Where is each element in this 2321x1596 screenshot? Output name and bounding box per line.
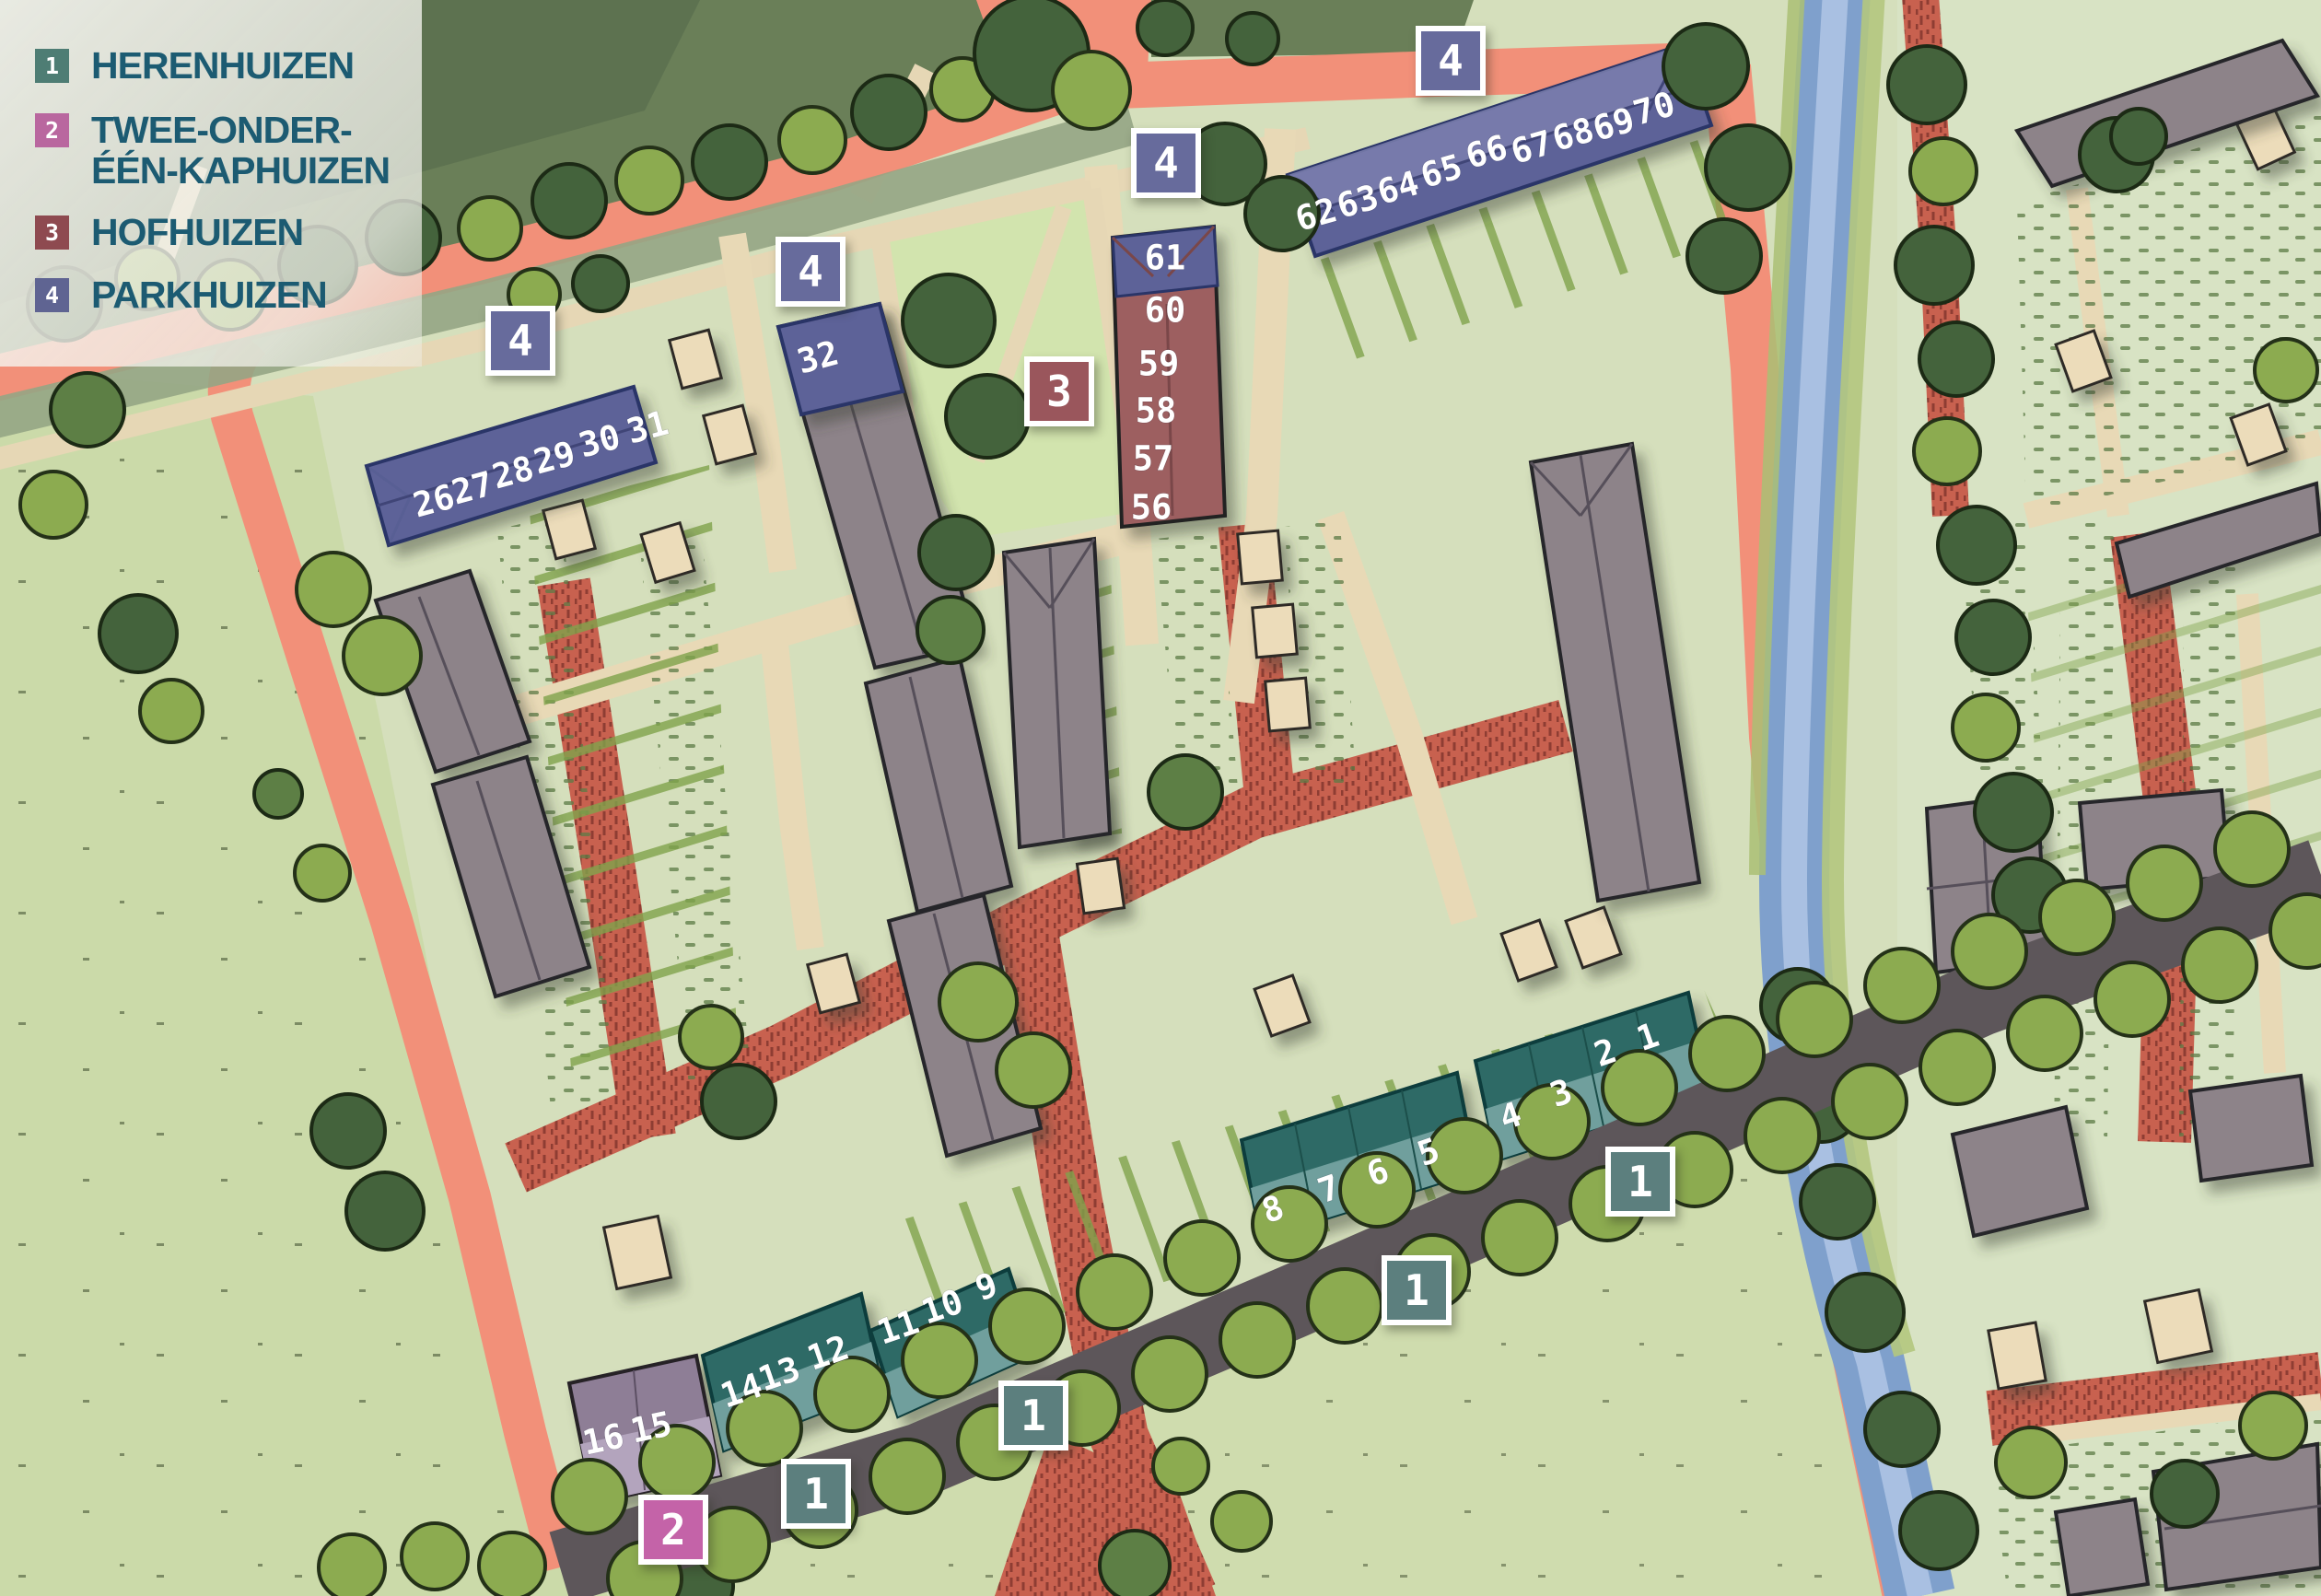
- tree-icon: [1483, 1201, 1557, 1275]
- tree-icon: [2240, 1392, 2306, 1459]
- tree-icon: [1137, 0, 1193, 55]
- tree-icon: [140, 680, 203, 742]
- tree-icon: [346, 1172, 424, 1250]
- tree-icon: [616, 147, 682, 214]
- tree-icon: [852, 76, 926, 149]
- tree-icon: [297, 553, 370, 626]
- tree-icon: [532, 164, 606, 238]
- legend-swatch-hofhuizen: 3: [35, 216, 69, 250]
- tree-icon: [2183, 928, 2257, 1002]
- tree-icon: [2008, 996, 2082, 1070]
- tree-icon: [573, 256, 628, 311]
- building-gray-right-low-2: [2190, 1076, 2312, 1181]
- plot-number: 61: [1145, 239, 1186, 278]
- tree-icon: [680, 1006, 742, 1068]
- tree-icon: [1956, 600, 2030, 674]
- legend-swatch-kaphuizen: 2: [35, 113, 69, 147]
- badge-parkhuizen: 4: [485, 306, 555, 376]
- tree-icon: [1100, 1531, 1170, 1596]
- legend-label: TWEE-ONDER-ÉÉN-KAPHUIZEN: [91, 110, 395, 191]
- badge-kaphuizen: 2: [638, 1495, 708, 1565]
- tree-icon: [1833, 1065, 1907, 1138]
- tree-icon: [1663, 24, 1748, 109]
- badge-hofhuizen: 3: [1024, 356, 1094, 426]
- plot-number: 60: [1145, 291, 1186, 331]
- plot-number: 59: [1138, 344, 1180, 384]
- tree-icon: [1938, 507, 2015, 584]
- tree-icon: [919, 516, 993, 589]
- tree-icon: [99, 595, 177, 672]
- legend-label: HERENHUIZEN: [91, 45, 395, 86]
- badge-parkhuizen: 4: [1131, 128, 1201, 198]
- tree-icon: [1919, 322, 1993, 396]
- tree-icon: [1212, 1492, 1271, 1551]
- tree-icon: [1801, 1165, 1874, 1239]
- tree-icon: [311, 1094, 385, 1168]
- tree-icon: [2215, 812, 2289, 886]
- tree-icon: [1745, 1099, 1819, 1172]
- building-gray-bottom-right-2: [2056, 1499, 2148, 1596]
- legend-swatch-parkhuizen: 4: [35, 278, 69, 312]
- tree-icon: [1308, 1269, 1382, 1343]
- tree-icon: [1914, 418, 1980, 484]
- tree-icon: [1133, 1337, 1207, 1411]
- badge-herenhuizen: 1: [1605, 1147, 1675, 1217]
- tree-icon: [2128, 846, 2201, 920]
- tree-icon: [553, 1460, 626, 1533]
- badge-herenhuizen: 1: [781, 1459, 851, 1529]
- tree-icon: [1149, 755, 1222, 829]
- tree-icon: [1690, 1017, 1764, 1090]
- tree-icon: [2152, 1461, 2218, 1527]
- plot-number: 16: [579, 1415, 628, 1462]
- tree-icon: [1687, 219, 1761, 293]
- tree-icon: [1895, 227, 1973, 304]
- tree-icon: [1910, 138, 1977, 204]
- tree-icon: [1706, 125, 1790, 210]
- legend-item-herenhuizen: 1 HERENHUIZEN: [35, 49, 395, 86]
- tree-icon: [20, 472, 87, 538]
- tree-icon: [2095, 962, 2169, 1036]
- tree-icon: [1220, 1303, 1294, 1377]
- tree-icon: [459, 197, 521, 260]
- tree-icon: [946, 375, 1029, 458]
- tree-icon: [779, 107, 846, 173]
- tree-icon: [319, 1534, 385, 1596]
- tree-icon: [1778, 983, 1851, 1056]
- legend-swatch-herenhuizen: 1: [35, 49, 69, 83]
- badge-parkhuizen: 4: [1416, 26, 1486, 96]
- tree-icon: [1953, 914, 2026, 988]
- tree-icon: [402, 1523, 468, 1590]
- site-plan-map: 26 27 28 29 30 31 32 62 63 64 65 66 67 6…: [0, 0, 2321, 1596]
- tree-icon: [2111, 109, 2166, 164]
- tree-icon: [1900, 1492, 1977, 1569]
- legend-item-hofhuizen: 3 HOFHUIZEN: [35, 216, 395, 252]
- badge-parkhuizen: 4: [776, 237, 846, 307]
- tree-icon: [1865, 949, 1939, 1022]
- tree-icon: [1078, 1255, 1151, 1329]
- tree-icon: [1888, 46, 1965, 123]
- legend-item-parkhuizen: 4 PARKHUIZEN: [35, 278, 395, 315]
- tree-icon: [1953, 694, 2019, 761]
- tree-icon: [870, 1439, 944, 1513]
- legend-label: HOFHUIZEN: [91, 212, 395, 252]
- plot-number: 57: [1133, 439, 1174, 479]
- legend-label: PARKHUIZEN: [91, 274, 395, 315]
- tree-icon: [1165, 1221, 1239, 1295]
- plot-number: 56: [1131, 488, 1172, 528]
- tree-icon: [295, 845, 350, 901]
- tree-icon: [903, 274, 995, 367]
- tree-icon: [1053, 52, 1130, 129]
- tree-icon: [702, 1065, 776, 1138]
- tree-icon: [1153, 1439, 1208, 1494]
- tree-icon: [939, 963, 1017, 1041]
- tree-icon: [1975, 774, 2052, 851]
- badge-herenhuizen: 1: [998, 1380, 1068, 1450]
- tree-icon: [1920, 1031, 1994, 1104]
- tree-icon: [1996, 1427, 2066, 1497]
- legend-panel: 1 HERENHUIZEN 2 TWEE-ONDER-ÉÉN-KAPHUIZEN…: [0, 0, 422, 367]
- tree-icon: [917, 597, 984, 663]
- tree-icon: [2255, 339, 2317, 402]
- tree-icon: [1826, 1274, 1904, 1351]
- tree-icon: [479, 1532, 545, 1596]
- tree-icon: [693, 125, 766, 199]
- tree-icon: [1227, 13, 1278, 64]
- tree-icon: [344, 617, 421, 694]
- plot-number: 58: [1136, 391, 1177, 431]
- legend-item-kaphuizen: 2 TWEE-ONDER-ÉÉN-KAPHUIZEN: [35, 113, 395, 191]
- tree-icon: [254, 770, 302, 818]
- tree-icon: [1865, 1392, 1939, 1466]
- badge-herenhuizen: 1: [1382, 1255, 1452, 1325]
- tree-icon: [997, 1033, 1070, 1107]
- plot-number: 15: [627, 1404, 676, 1450]
- tree-icon: [51, 373, 124, 447]
- tree-icon: [2040, 880, 2114, 954]
